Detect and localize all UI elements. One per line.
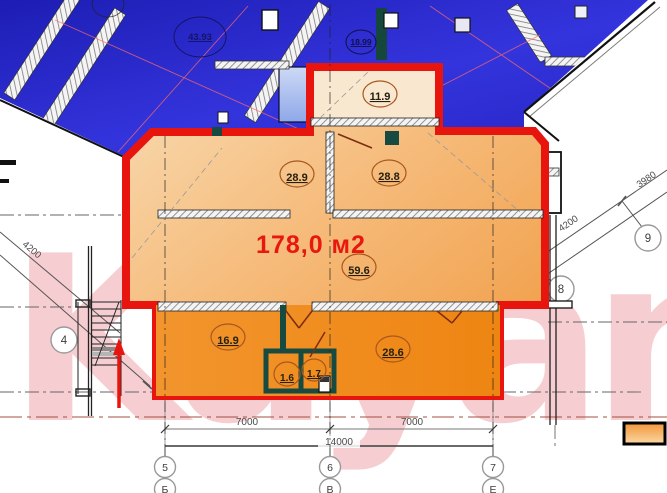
grid-label-9: 9 — [645, 233, 651, 245]
door-block — [385, 131, 399, 145]
window-icon — [279, 67, 309, 122]
room-label-16-9: 16.9 — [217, 335, 238, 347]
room-label-1899: 18.99 — [350, 37, 372, 47]
grid-label-5: 5 — [162, 462, 168, 474]
partition-wall — [280, 305, 286, 353]
hatched-wall — [312, 302, 498, 311]
grid-label-b: Б — [162, 484, 169, 493]
room-label-4393: 43.93 — [188, 32, 212, 43]
hatched-wall — [158, 210, 290, 218]
dim-14000: 14000 — [325, 437, 353, 448]
dim-7000-right: 7000 — [401, 417, 424, 428]
room-label-11-9: 11.9 — [370, 91, 391, 103]
floor-plan-drawing: Kayan 4200 4200 3980 7000 7000 — [0, 0, 667, 493]
duct-icon — [384, 13, 398, 28]
room-label-1-7: 1.7 — [307, 369, 321, 380]
grid-label-4: 4 — [61, 335, 68, 347]
grid-label-8: 8 — [558, 284, 564, 296]
room-label-28-6: 28.6 — [382, 347, 403, 359]
hatched-wall — [215, 61, 289, 69]
grid-label-6: 6 — [327, 462, 333, 474]
hatched-wall — [158, 302, 286, 311]
hatched-wall — [333, 210, 543, 218]
room-label-59-6: 59.6 — [348, 265, 369, 277]
room-label-1-6: 1.6 — [280, 373, 294, 384]
duct-icon — [455, 18, 470, 32]
toilet-tank — [320, 377, 329, 382]
room-label-28-9: 28.9 — [286, 172, 307, 184]
duct-icon — [575, 6, 587, 18]
legend-swatch — [624, 423, 665, 444]
room-label-28-8: 28.8 — [378, 171, 399, 183]
floor-plan-canvas: Kayan 4200 4200 3980 7000 7000 — [0, 0, 667, 493]
grid-label-v: В — [326, 484, 333, 493]
duct-icon — [218, 112, 228, 123]
duct-icon — [262, 10, 278, 30]
total-area-label: 178,0 м2 — [256, 231, 366, 259]
dim-7000-left: 7000 — [236, 417, 259, 428]
grid-label-7: 7 — [490, 462, 496, 474]
grid-label-e: Е — [489, 484, 496, 493]
wall-block — [212, 127, 222, 136]
